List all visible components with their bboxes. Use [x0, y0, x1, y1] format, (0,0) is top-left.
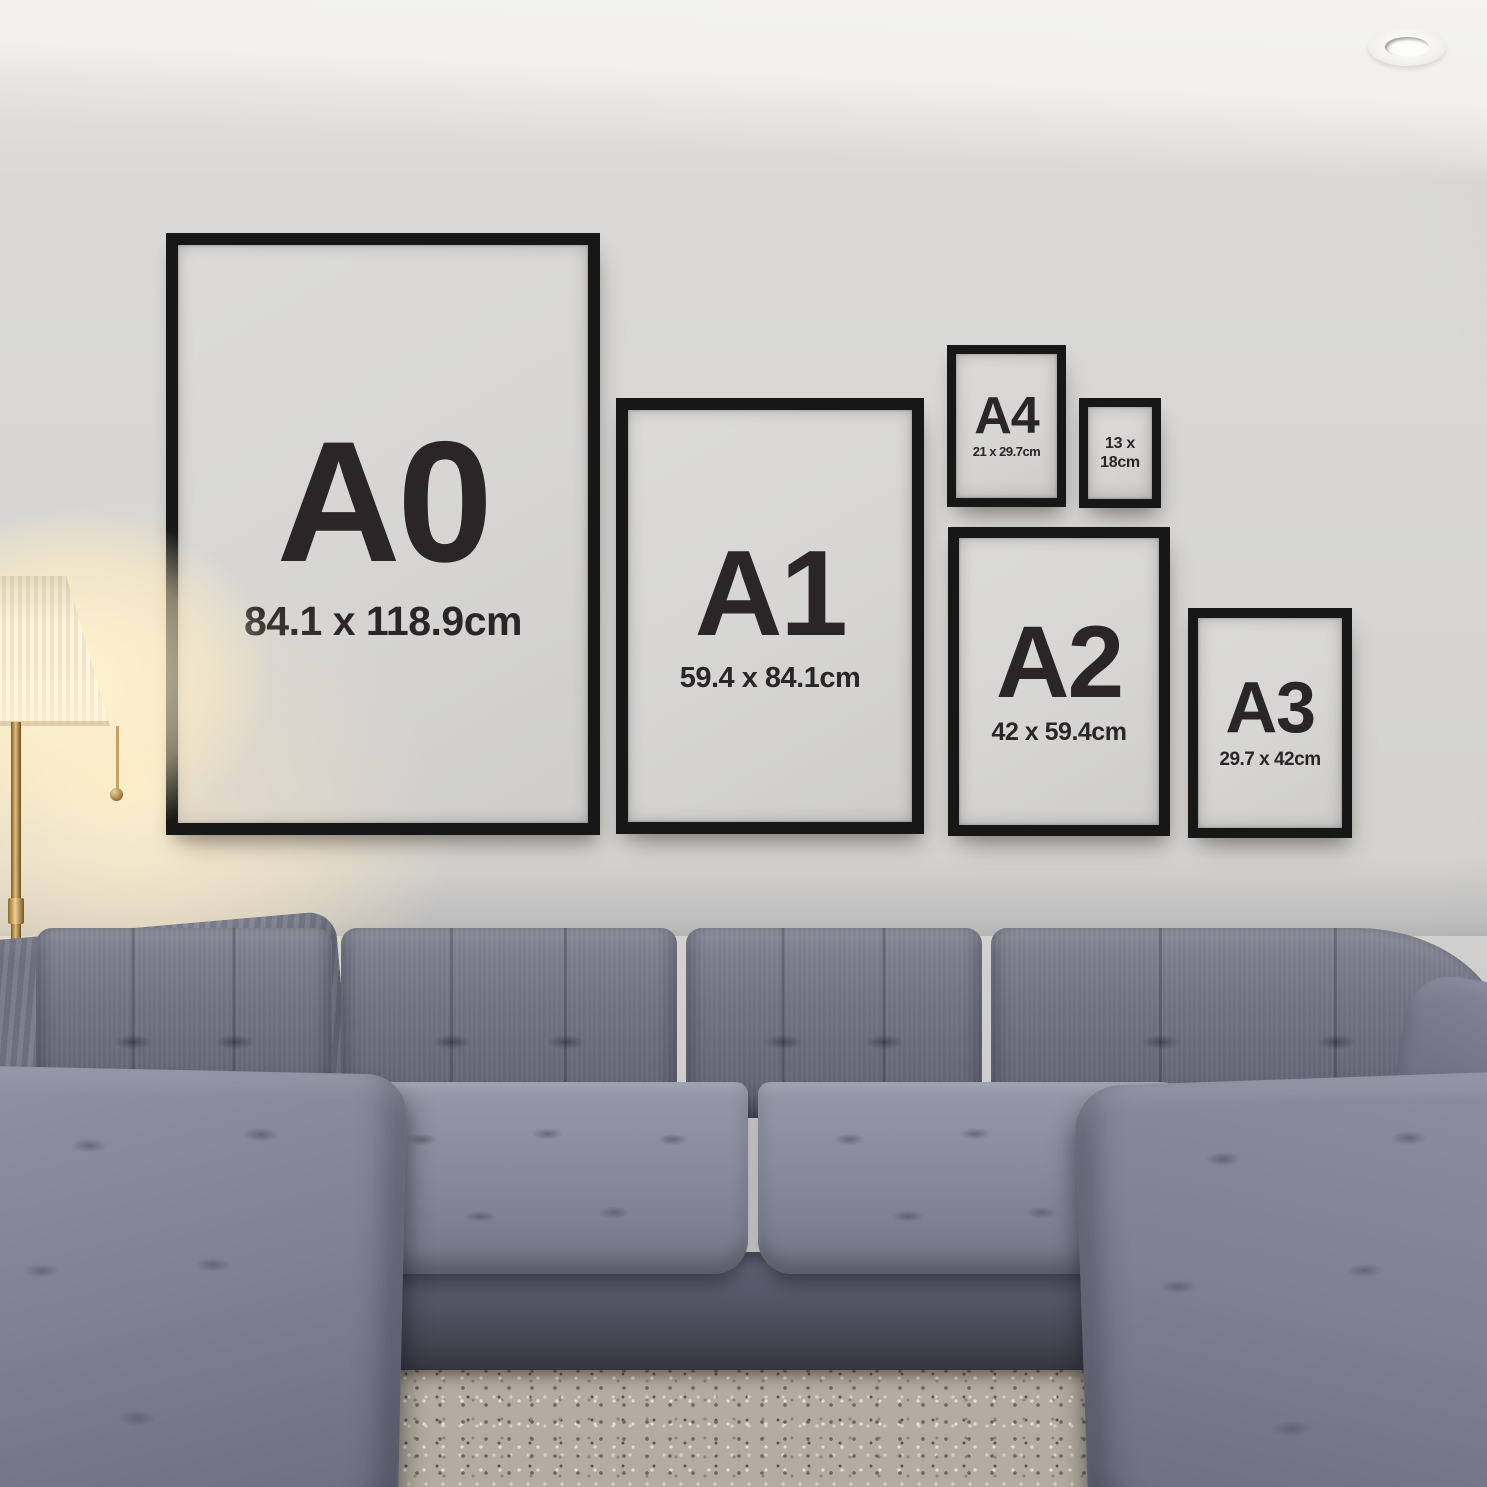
sectional-sofa [0, 0, 1487, 1487]
living-room-scene: A0 84.1 x 118.9cm A1 59.4 x 84.1cm A4 21… [0, 0, 1487, 1487]
sofa-chaise-left [0, 1065, 407, 1487]
sofa-chaise-right [1074, 1070, 1487, 1487]
sofa-seats [330, 1082, 1175, 1274]
